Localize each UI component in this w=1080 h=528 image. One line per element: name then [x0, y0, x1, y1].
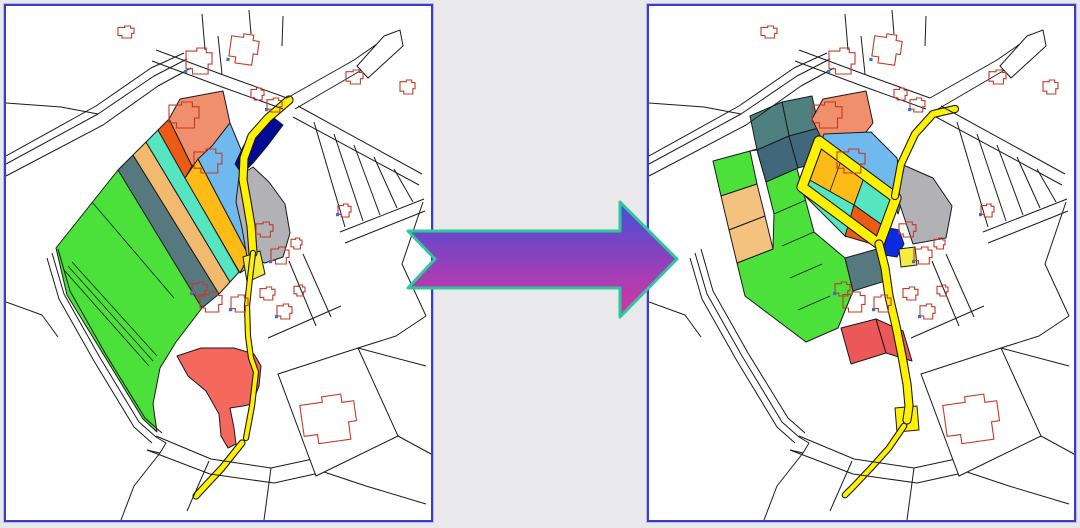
cadastral-line: [314, 122, 345, 227]
survey-mark-icon: [229, 308, 232, 311]
cadastral-line: [121, 453, 160, 520]
cadastral-line: [907, 468, 914, 520]
after-map-svg: [649, 6, 1074, 520]
cadastral-line: [861, 36, 865, 74]
building-outline: [277, 304, 292, 319]
diagram-canvas: [0, 0, 1080, 528]
building-outline: [871, 32, 903, 66]
survey-mark-icon: [265, 108, 268, 111]
building-outline: [228, 32, 260, 66]
parcel-gray-parcel: [899, 164, 952, 244]
building-outline: [989, 70, 1006, 84]
survey-mark-icon: [979, 213, 982, 216]
cadastral-line: [303, 254, 331, 317]
cadastral-line: [1001, 348, 1069, 366]
cadastral-line: [398, 436, 431, 454]
building-outline: [1043, 80, 1058, 94]
cadastral-line: [983, 199, 1067, 232]
right-arrow-icon: [408, 202, 677, 317]
building-outline: [761, 26, 777, 38]
survey-mark-icon: [869, 58, 873, 62]
cadastral-parcel-outline: [1000, 30, 1046, 78]
building-outline: [903, 287, 918, 300]
building-outline: [400, 80, 415, 94]
building-outline: [118, 26, 134, 38]
transform-arrow: [400, 190, 690, 335]
yellow-road: [196, 443, 242, 496]
cadastral-line: [264, 468, 271, 520]
cadastral-line: [941, 106, 1065, 174]
cadastral-parcel-outline: [357, 30, 403, 78]
cadastral-line: [911, 306, 984, 338]
cadastral-line: [289, 261, 316, 326]
survey-mark-icon: [827, 70, 830, 73]
survey-mark-icon: [190, 292, 193, 295]
cadastral-parcel-outline: [921, 348, 1041, 476]
cadastral-line: [249, 10, 251, 34]
cadastral-line: [925, 16, 926, 46]
cadastral-line: [358, 348, 426, 366]
survey-mark-icon: [336, 213, 339, 216]
cadastral-line: [988, 211, 1068, 243]
cadastral-line: [946, 254, 974, 317]
building-outline: [260, 287, 275, 300]
survey-mark-icon: [269, 260, 272, 263]
cadastral-line: [374, 157, 397, 208]
building-outline: [186, 48, 212, 74]
cadastral-line: [764, 453, 803, 520]
cadastral-line: [1017, 157, 1040, 208]
survey-mark-icon: [872, 308, 875, 311]
cadastral-parcel-outline: [278, 348, 398, 476]
cadastral-line: [218, 36, 222, 74]
cadastral-line: [967, 472, 1069, 504]
survey-mark-icon: [275, 315, 278, 318]
cadastral-line: [1041, 436, 1074, 454]
cadastral-line: [845, 14, 848, 50]
survey-mark-icon: [833, 292, 836, 295]
cadastral-line: [6, 302, 58, 337]
survey-mark-icon: [918, 315, 921, 318]
right-arrow-svg: [400, 190, 690, 335]
survey-mark-icon: [184, 70, 187, 73]
cadastral-line: [282, 16, 283, 46]
cadastral-line: [957, 122, 988, 227]
cadastral-line: [892, 10, 894, 34]
cadastral-line: [324, 472, 426, 504]
survey-mark-icon: [908, 108, 911, 111]
cadastral-line: [298, 106, 422, 174]
cadastral-line: [202, 14, 205, 50]
after-map-panel: [647, 4, 1076, 522]
building-outline: [346, 70, 363, 84]
survey-mark-icon: [226, 58, 230, 62]
cadastral-line: [268, 306, 341, 338]
cadastral-line: [1001, 316, 1069, 348]
before-map-panel: [4, 4, 433, 522]
building-outline: [920, 304, 935, 319]
building-outline: [829, 48, 855, 74]
cadastral-line: [1037, 169, 1056, 202]
before-map-svg: [6, 6, 431, 520]
cadastral-line: [932, 261, 959, 326]
survey-mark-icon: [912, 260, 915, 263]
cadastral-line: [830, 461, 852, 511]
building-outline: [910, 98, 925, 112]
building-outline: [291, 238, 302, 249]
